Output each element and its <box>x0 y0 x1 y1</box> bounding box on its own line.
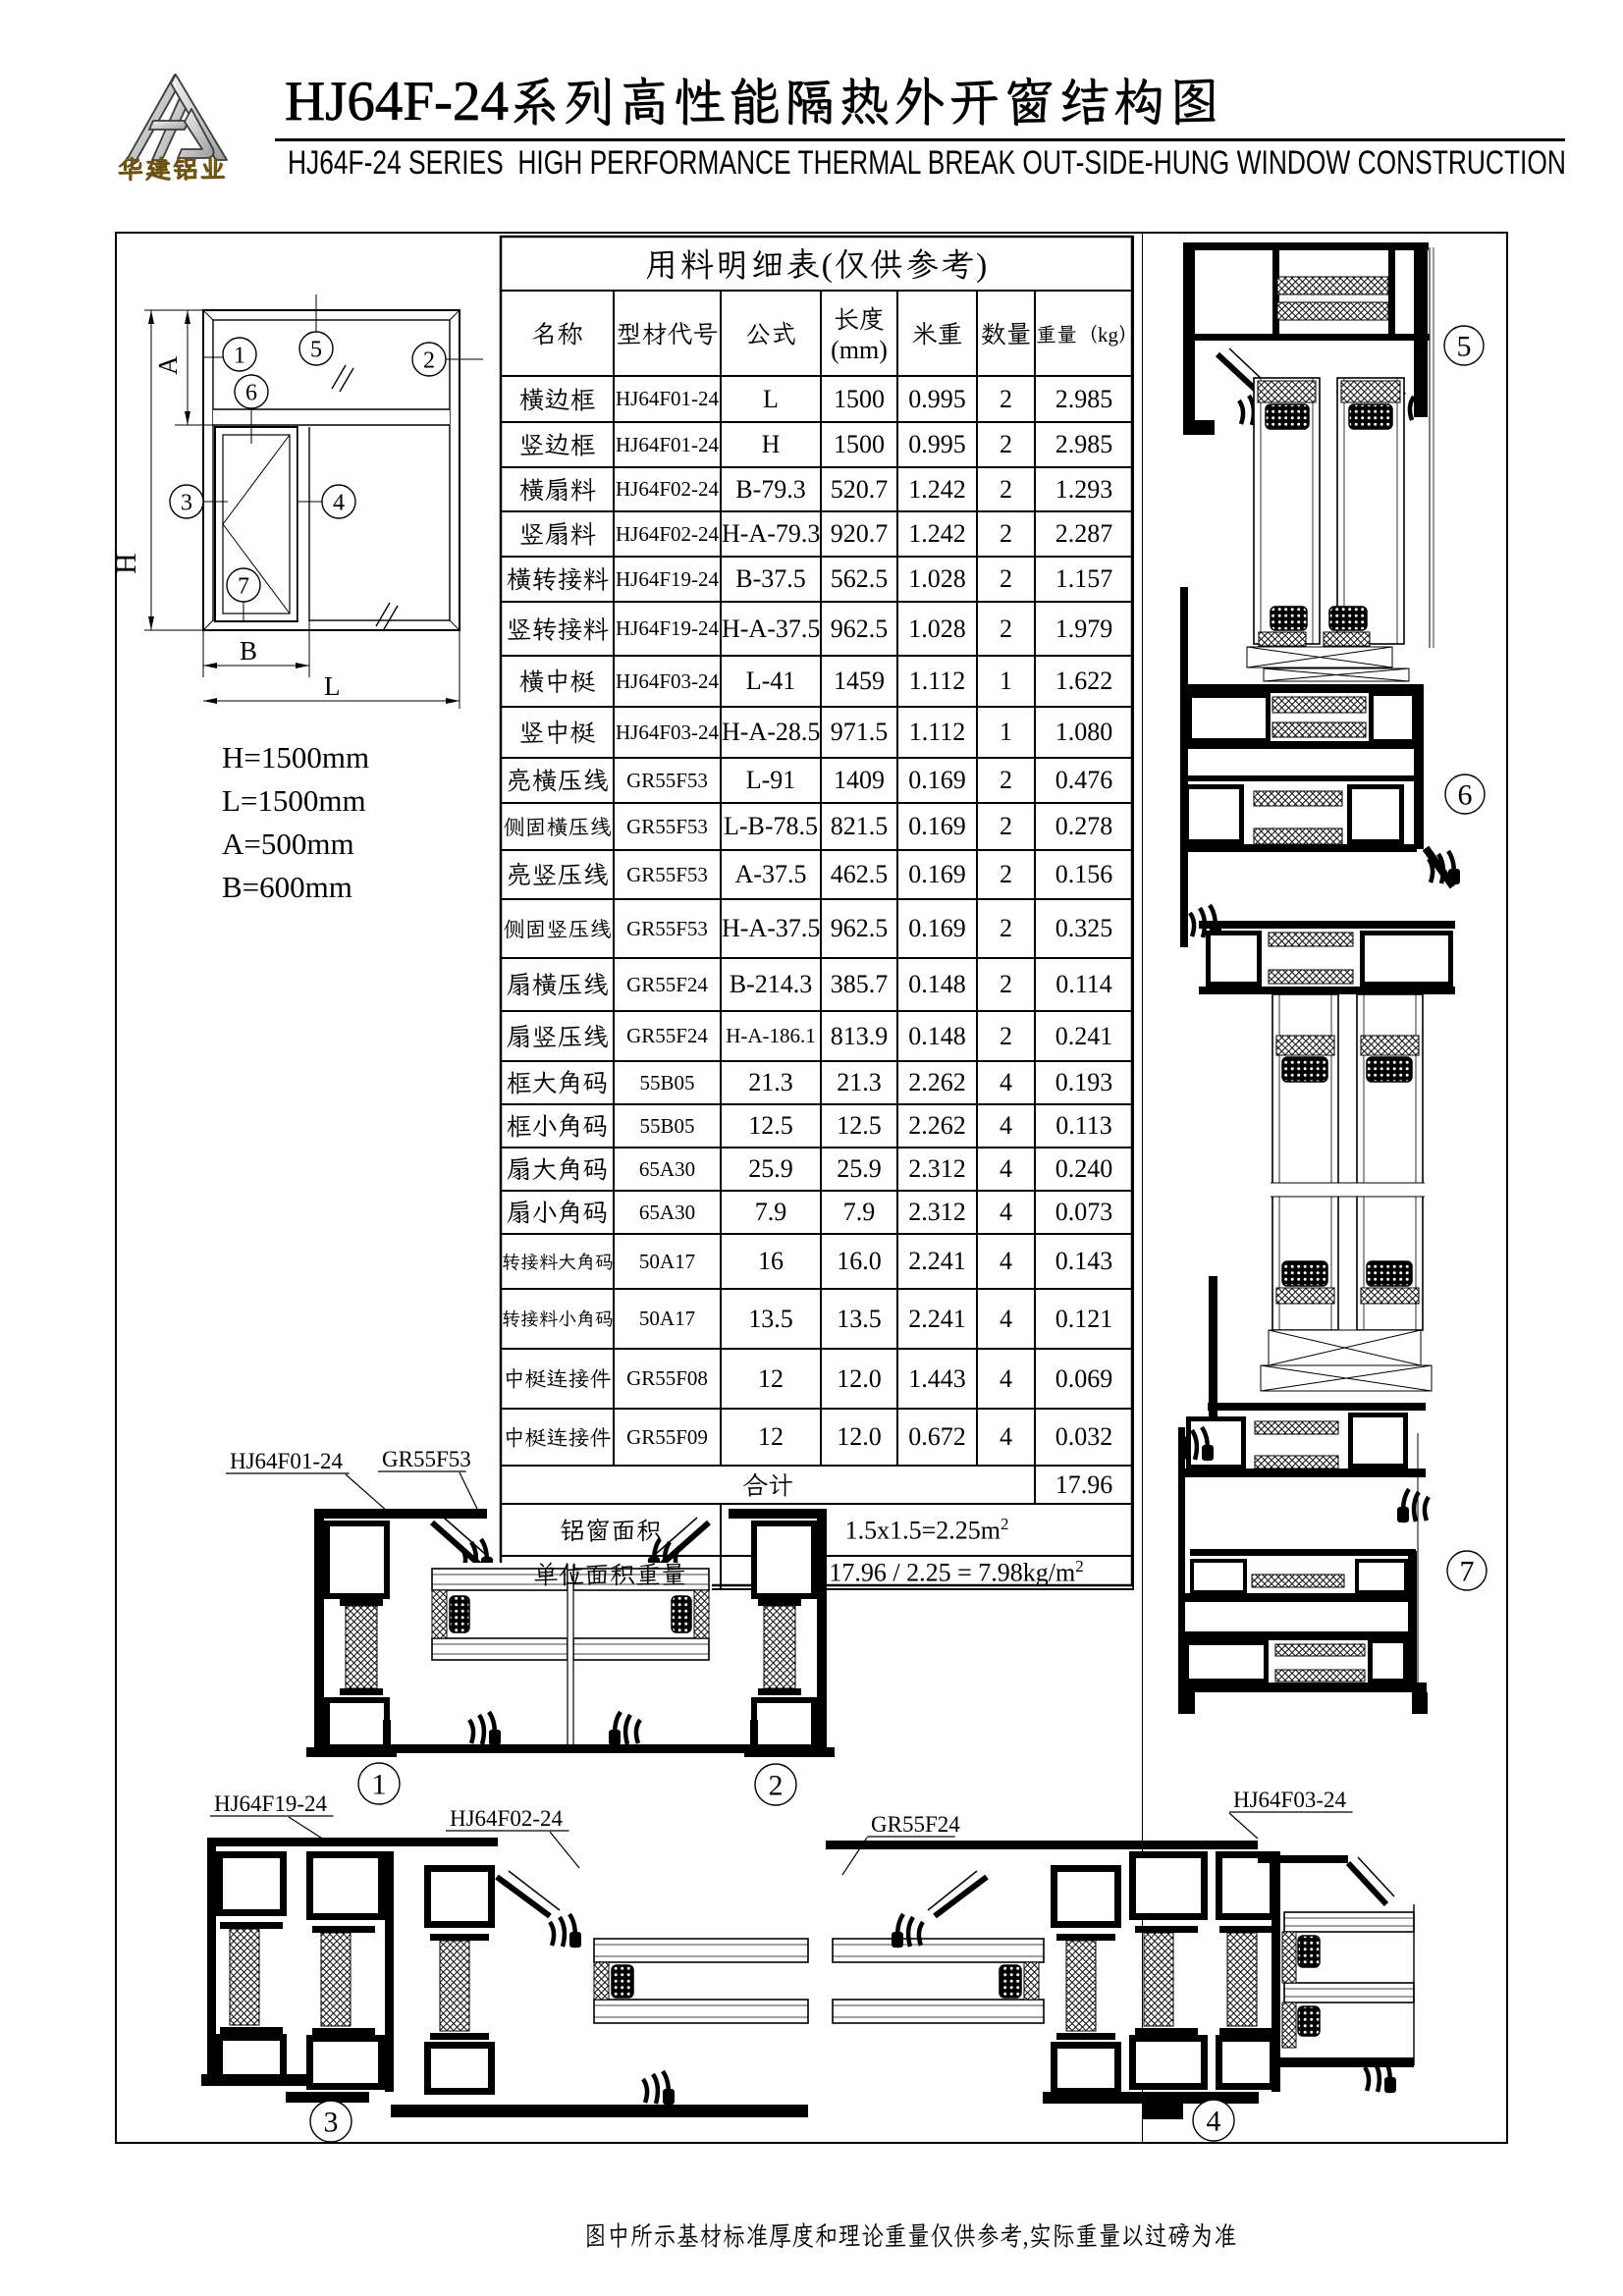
svg-text:GR55F53: GR55F53 <box>382 1447 471 1471</box>
svg-text:3: 3 <box>181 490 192 515</box>
svg-text:1: 1 <box>372 1769 387 1801</box>
svg-text:1: 1 <box>234 343 245 368</box>
svg-text:HJ64F02-24: HJ64F02-24 <box>450 1806 564 1831</box>
svg-text:H: H <box>110 553 142 574</box>
svg-text:6: 6 <box>245 380 257 405</box>
svg-text:5: 5 <box>310 337 322 362</box>
svg-text:GR55F24: GR55F24 <box>871 1812 960 1837</box>
svg-text:4: 4 <box>333 490 345 515</box>
svg-text:HJ64F19-24: HJ64F19-24 <box>214 1791 328 1816</box>
svg-text:2: 2 <box>423 347 435 373</box>
svg-text:2: 2 <box>769 1770 784 1802</box>
svg-text:L: L <box>324 671 341 701</box>
svg-text:7: 7 <box>238 573 249 599</box>
svg-text:5: 5 <box>1457 331 1472 363</box>
svg-text:4: 4 <box>1207 2106 1221 2138</box>
svg-text:7: 7 <box>1460 1556 1475 1588</box>
svg-text:3: 3 <box>324 2107 339 2139</box>
svg-text:A: A <box>153 355 183 375</box>
svg-text:6: 6 <box>1458 779 1473 812</box>
svg-text:HJ64F03-24: HJ64F03-24 <box>1233 1788 1347 1812</box>
svg-text:B: B <box>240 636 257 666</box>
svg-text:HJ64F01-24: HJ64F01-24 <box>230 1449 344 1473</box>
